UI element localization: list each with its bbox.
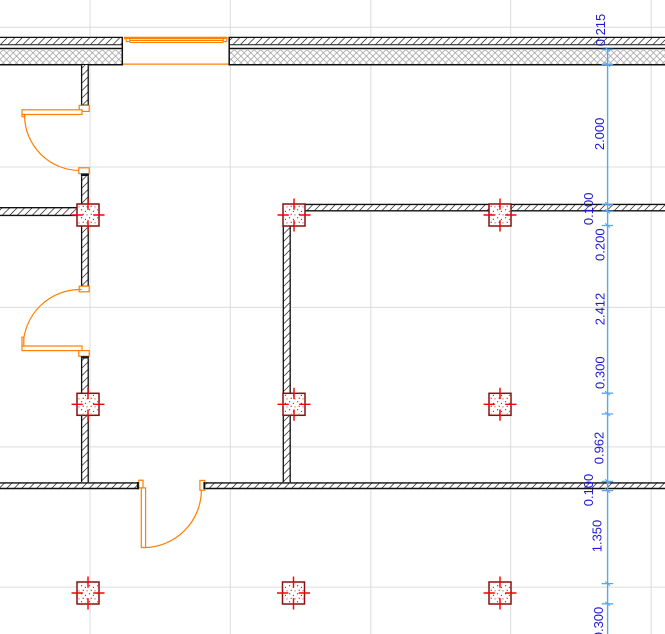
svg-text:0.100: 0.100	[581, 474, 596, 507]
svg-text:0.300: 0.300	[593, 356, 608, 389]
svg-text:1.350: 1.350	[590, 520, 605, 553]
svg-text:2.000: 2.000	[592, 118, 607, 151]
svg-text:0.300: 0.300	[591, 607, 606, 634]
svg-text:0.100: 0.100	[581, 193, 596, 226]
svg-text:2.412: 2.412	[593, 293, 608, 326]
svg-text:0.200: 0.200	[593, 228, 608, 261]
svg-text:0.215: 0.215	[593, 14, 608, 47]
svg-text:0.962: 0.962	[592, 432, 607, 465]
